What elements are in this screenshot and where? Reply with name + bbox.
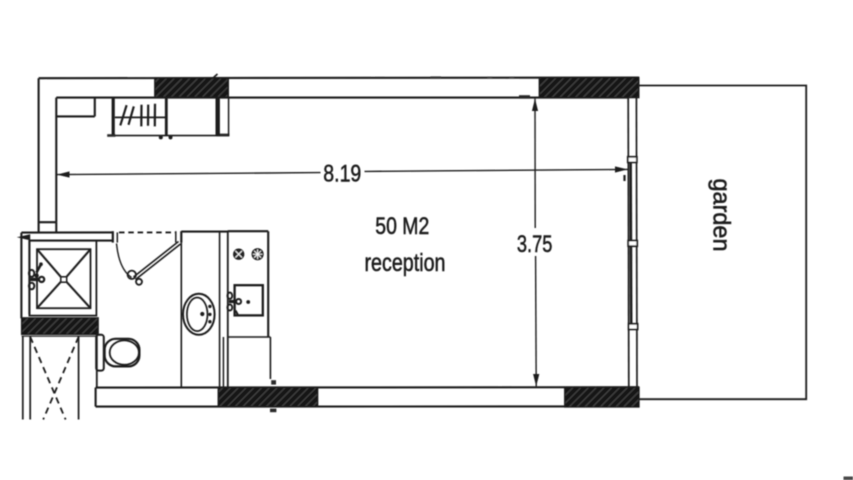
svg-text:3.75: 3.75 (517, 231, 553, 258)
svg-text:8.19: 8.19 (323, 161, 361, 188)
svg-text:reception: reception (365, 249, 446, 277)
svg-text:garden: garden (708, 179, 735, 252)
svg-text:50 M2: 50 M2 (375, 213, 429, 240)
